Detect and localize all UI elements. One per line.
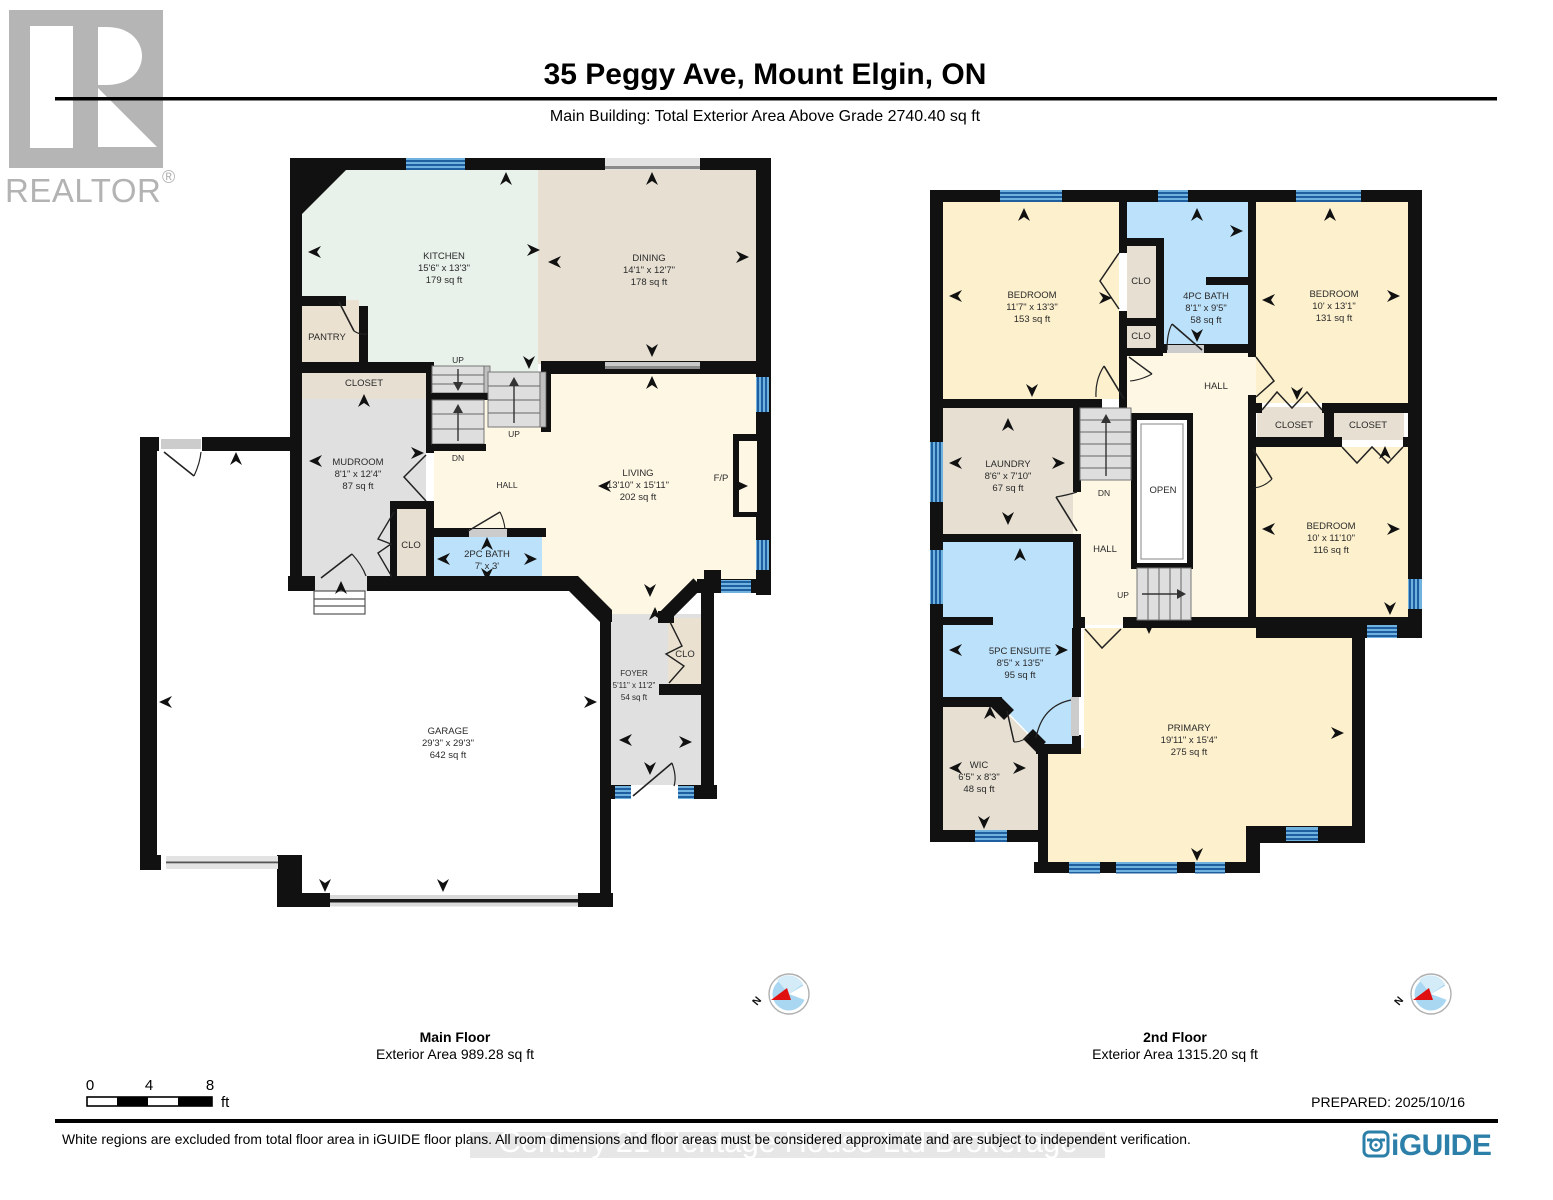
svg-text:DN: DN <box>1098 488 1110 498</box>
svg-text:131 sq ft: 131 sq ft <box>1316 313 1353 324</box>
svg-text:2PC BATH: 2PC BATH <box>464 549 510 560</box>
svg-text:5'11" x 11'2": 5'11" x 11'2" <box>613 681 656 690</box>
svg-text:4PC BATH: 4PC BATH <box>1183 291 1229 302</box>
svg-text:REALTOR: REALTOR <box>5 172 161 209</box>
svg-text:Exterior Area 989.28 sq ft: Exterior Area 989.28 sq ft <box>376 1046 534 1062</box>
svg-text:iGUIDE: iGUIDE <box>1391 1129 1491 1162</box>
svg-text:14'1" x 12'7": 14'1" x 12'7" <box>623 265 675 276</box>
svg-text:®: ® <box>162 167 175 187</box>
svg-text:CLOSET: CLOSET <box>1349 420 1387 431</box>
svg-text:PANTRY: PANTRY <box>308 332 346 343</box>
svg-text:UP: UP <box>508 429 520 439</box>
svg-text:0: 0 <box>86 1077 94 1094</box>
svg-text:178 sq ft: 178 sq ft <box>631 277 668 288</box>
svg-text:DINING: DINING <box>632 253 665 264</box>
svg-text:PREPARED: 2025/10/16: PREPARED: 2025/10/16 <box>1311 1094 1465 1110</box>
svg-text:8'6" x 7'10": 8'6" x 7'10" <box>985 471 1032 482</box>
svg-text:87 sq ft: 87 sq ft <box>342 481 374 492</box>
svg-text:4: 4 <box>145 1077 153 1094</box>
svg-text:HALL: HALL <box>1093 544 1117 555</box>
svg-text:11'7" x 13'3": 11'7" x 13'3" <box>1006 302 1057 313</box>
svg-text:CLO: CLO <box>1131 276 1151 287</box>
svg-text:54 sq ft: 54 sq ft <box>621 693 648 702</box>
svg-text:White regions are excluded fro: White regions are excluded from total fl… <box>62 1131 1191 1147</box>
svg-text:58 sq ft: 58 sq ft <box>1190 315 1222 326</box>
svg-text:8: 8 <box>206 1077 214 1094</box>
svg-text:ft: ft <box>221 1094 230 1111</box>
svg-text:HALL: HALL <box>496 480 518 490</box>
svg-text:LAUNDRY: LAUNDRY <box>985 459 1031 470</box>
svg-text:PRIMARY: PRIMARY <box>1167 723 1211 734</box>
svg-text:DN: DN <box>452 453 464 463</box>
svg-text:HALL: HALL <box>1204 381 1228 392</box>
svg-text:8'1" x 9'5": 8'1" x 9'5" <box>1185 303 1227 314</box>
svg-text:CLOSET: CLOSET <box>1275 420 1313 431</box>
svg-text:OPEN: OPEN <box>1150 485 1177 496</box>
svg-text:BEDROOM: BEDROOM <box>1007 290 1056 301</box>
svg-text:95 sq ft: 95 sq ft <box>1004 670 1036 681</box>
svg-text:8'1" x 12'4": 8'1" x 12'4" <box>335 469 382 480</box>
svg-text:LIVING: LIVING <box>622 468 653 479</box>
svg-text:153 sq ft: 153 sq ft <box>1014 314 1051 325</box>
svg-text:7' x 3': 7' x 3' <box>475 561 499 572</box>
svg-text:Main Floor: Main Floor <box>420 1029 491 1045</box>
svg-text:CLO: CLO <box>401 540 421 551</box>
svg-text:48 sq ft: 48 sq ft <box>963 784 995 795</box>
svg-text:202 sq ft: 202 sq ft <box>620 492 657 503</box>
svg-text:67 sq ft: 67 sq ft <box>992 483 1024 494</box>
svg-text:116 sq ft: 116 sq ft <box>1313 545 1349 556</box>
svg-text:UP: UP <box>452 355 464 365</box>
svg-text:13'10" x 15'11": 13'10" x 15'11" <box>607 480 669 491</box>
svg-text:35 Peggy Ave, Mount Elgin, ON: 35 Peggy Ave, Mount Elgin, ON <box>544 58 987 91</box>
svg-text:19'11" x 15'4": 19'11" x 15'4" <box>1161 735 1218 746</box>
svg-text:CLO: CLO <box>1131 331 1151 342</box>
svg-text:8'5" x 13'5": 8'5" x 13'5" <box>997 658 1044 669</box>
svg-text:10' x 11'10": 10' x 11'10" <box>1307 533 1355 544</box>
svg-text:2nd Floor: 2nd Floor <box>1143 1029 1207 1045</box>
svg-text:CLOSET: CLOSET <box>345 378 383 389</box>
svg-text:BEDROOM: BEDROOM <box>1309 289 1358 300</box>
svg-text:MUDROOM: MUDROOM <box>332 457 383 468</box>
svg-text:5PC ENSUITE: 5PC ENSUITE <box>989 646 1051 657</box>
svg-text:29'3" x 29'3": 29'3" x 29'3" <box>422 738 474 749</box>
svg-text:GARAGE: GARAGE <box>428 726 469 737</box>
svg-text:642 sq ft: 642 sq ft <box>430 750 467 761</box>
svg-text:Exterior Area 1315.20 sq ft: Exterior Area 1315.20 sq ft <box>1092 1046 1258 1062</box>
svg-text:179 sq ft: 179 sq ft <box>426 275 463 286</box>
svg-text:FOYER: FOYER <box>620 669 648 678</box>
svg-text:WIC: WIC <box>970 760 989 771</box>
svg-text:275 sq ft: 275 sq ft <box>1171 747 1208 758</box>
svg-text:BEDROOM: BEDROOM <box>1306 521 1355 532</box>
svg-text:UP: UP <box>1117 590 1129 600</box>
svg-text:6'5" x 8'3": 6'5" x 8'3" <box>958 772 1000 783</box>
svg-text:F/P: F/P <box>714 473 729 484</box>
svg-text:15'6" x 13'3": 15'6" x 13'3" <box>418 263 470 274</box>
svg-text:KITCHEN: KITCHEN <box>423 251 465 262</box>
svg-text:CLO: CLO <box>675 649 695 660</box>
svg-text:10' x 13'1": 10' x 13'1" <box>1312 301 1355 312</box>
svg-text:Main Building: Total Exterior: Main Building: Total Exterior Area Above… <box>550 108 981 125</box>
